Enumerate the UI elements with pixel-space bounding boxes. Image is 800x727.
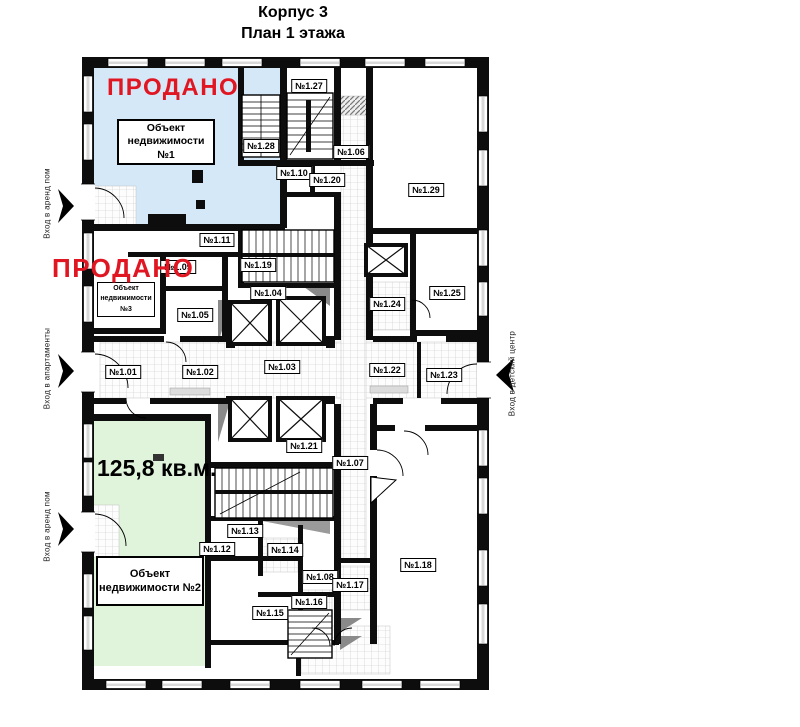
room-label: №1.05: [177, 308, 213, 322]
room-label: №1.13: [227, 524, 263, 538]
room-label: №1.10: [276, 166, 312, 180]
room-label: №1.24: [369, 297, 405, 311]
object1-label: Объект недвижимости №1: [119, 122, 213, 163]
room-label: №1.15: [252, 606, 288, 620]
room-label: №1.04: [250, 286, 286, 300]
arrow-right-icon: [58, 512, 74, 546]
room-label: №1.28: [243, 139, 279, 153]
room-label: №1.01: [105, 365, 141, 379]
stair-top-middle: [287, 93, 333, 159]
room-label: №1.29: [408, 183, 444, 197]
elevator-shaft: [230, 302, 270, 344]
area-label: 125,8 кв.м.: [97, 455, 216, 482]
stair-bottom: [215, 468, 333, 518]
arrow-right-icon: [58, 354, 74, 388]
room-label: №1.02: [182, 365, 218, 379]
entrance-label-left-middle: Вход в апартаменты: [43, 314, 52, 424]
room-label: №1.12: [199, 542, 235, 556]
room-label: №1.06: [333, 145, 369, 159]
sold-label-top: ПРОДАНО: [107, 74, 239, 102]
room-label: №1.17: [332, 578, 368, 592]
floor-plan-page: { "title": { "building": "Корпус 3", "fl…: [0, 0, 800, 727]
entrance-label-left-top: Вход в аренд пом: [43, 149, 52, 259]
room-label: №1.25: [429, 286, 465, 300]
object3-box: Объект недвижимости №3: [97, 282, 155, 317]
object2-label: Объект недвижимости №2: [98, 567, 202, 596]
room-label: №1.14: [267, 543, 303, 557]
entrance-label-right: Вход в детский центр: [508, 319, 517, 429]
building-title: Корпус 3: [128, 2, 458, 23]
room-label: №1.19: [240, 258, 276, 272]
room-label: №1.20: [309, 173, 345, 187]
title-block: Корпус 3 План 1 этажа: [128, 2, 458, 44]
elevator-shaft: [278, 298, 324, 344]
stair-middle: [242, 230, 334, 282]
floor-title: План 1 этажа: [128, 23, 458, 44]
elevator-shaft: [366, 245, 406, 275]
elevator-shaft: [230, 398, 270, 440]
room-label: №1.23: [426, 368, 462, 382]
arrow-right-icon: [58, 189, 74, 223]
sold-label-middle: ПРОДАНО: [52, 253, 194, 284]
room-label: №1.27: [291, 79, 327, 93]
object3-label: Объект недвижимости №3: [98, 284, 154, 314]
entrance-label-left-bottom: Вход в аренд пом: [43, 472, 52, 582]
room-label: №1.18: [400, 558, 436, 572]
room-label: №1.11: [199, 233, 234, 247]
object2-box: Объект недвижимости №2: [96, 556, 204, 606]
room-label: №1.21: [286, 439, 322, 453]
room-label: №1.03: [264, 360, 300, 374]
room-label: №1.07: [332, 456, 368, 470]
room-label: №1.22: [369, 363, 405, 377]
object1-box: Объект недвижимости №1: [117, 119, 215, 165]
elevator-shaft: [278, 398, 324, 440]
room-label: №1.16: [291, 595, 327, 609]
